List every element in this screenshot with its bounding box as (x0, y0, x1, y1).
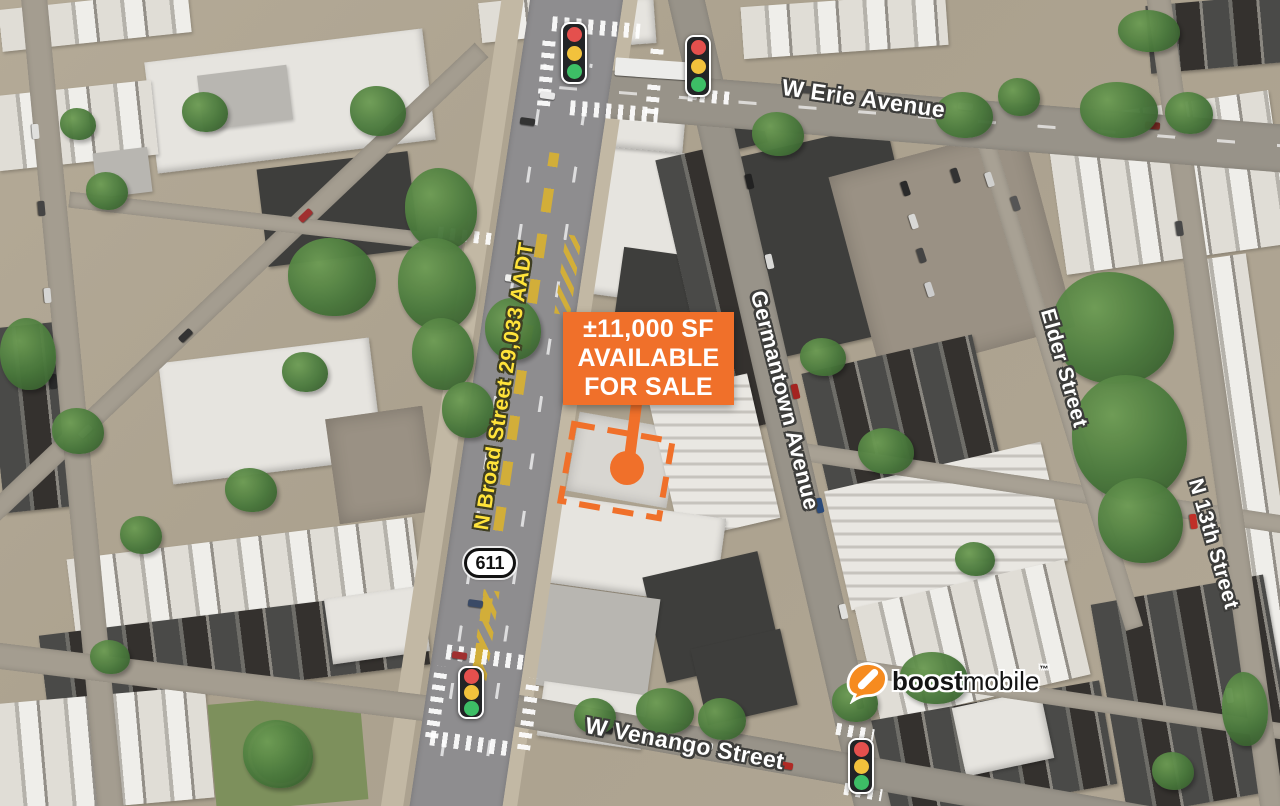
red-lamp-icon (464, 669, 479, 684)
tree (1098, 478, 1183, 563)
traffic-light-icon (561, 22, 587, 84)
tree (225, 468, 277, 512)
tree (1222, 672, 1268, 746)
callout-size: ±11,000 SF (583, 315, 714, 344)
tree (52, 408, 104, 454)
tree (282, 352, 328, 392)
boost-mobile-logo: boostmobile™ (846, 658, 1048, 704)
tree (858, 428, 914, 474)
trademark-symbol: ™ (1039, 664, 1048, 674)
boost-logo-icon (846, 658, 890, 704)
amber-lamp-icon (464, 685, 479, 700)
mobile-wordmark: mobile (963, 666, 1040, 697)
tree (243, 720, 313, 788)
green-lamp-icon (854, 775, 869, 790)
aerial-map: ±11,000 SF AVAILABLE FOR SALE W Erie Ave… (0, 0, 1280, 806)
tree (955, 542, 995, 576)
tree (90, 640, 130, 674)
red-lamp-icon (691, 40, 706, 55)
green-lamp-icon (691, 77, 706, 92)
callout-available: AVAILABLE (577, 344, 719, 373)
route-611-shield: 611 (464, 548, 516, 578)
amber-lamp-icon (691, 59, 706, 74)
traffic-light-icon (685, 35, 711, 97)
tree (1080, 82, 1158, 138)
car (43, 288, 51, 304)
map-building (740, 0, 948, 59)
tree (412, 318, 474, 390)
tree (800, 338, 846, 376)
tree (1118, 10, 1180, 52)
car (37, 201, 45, 217)
boost-wordmark: boost (892, 666, 963, 697)
traffic-light-icon (848, 738, 874, 794)
car (31, 124, 39, 140)
tree (0, 318, 56, 390)
tree (752, 112, 804, 156)
green-lamp-icon (567, 64, 582, 79)
tree (120, 516, 162, 554)
tree (60, 108, 96, 140)
tree (350, 86, 406, 136)
map-building (325, 406, 437, 525)
amber-lamp-icon (854, 759, 869, 774)
tree (86, 172, 128, 210)
tree (182, 92, 228, 132)
availability-callout: ±11,000 SF AVAILABLE FOR SALE (563, 312, 734, 405)
callout-for-sale: FOR SALE (584, 373, 713, 402)
amber-lamp-icon (567, 46, 582, 61)
red-lamp-icon (854, 742, 869, 757)
green-lamp-icon (464, 701, 479, 716)
tree (998, 78, 1040, 116)
tree (1165, 92, 1213, 134)
red-lamp-icon (567, 27, 582, 42)
traffic-light-icon (458, 666, 484, 719)
tree (1152, 752, 1194, 790)
